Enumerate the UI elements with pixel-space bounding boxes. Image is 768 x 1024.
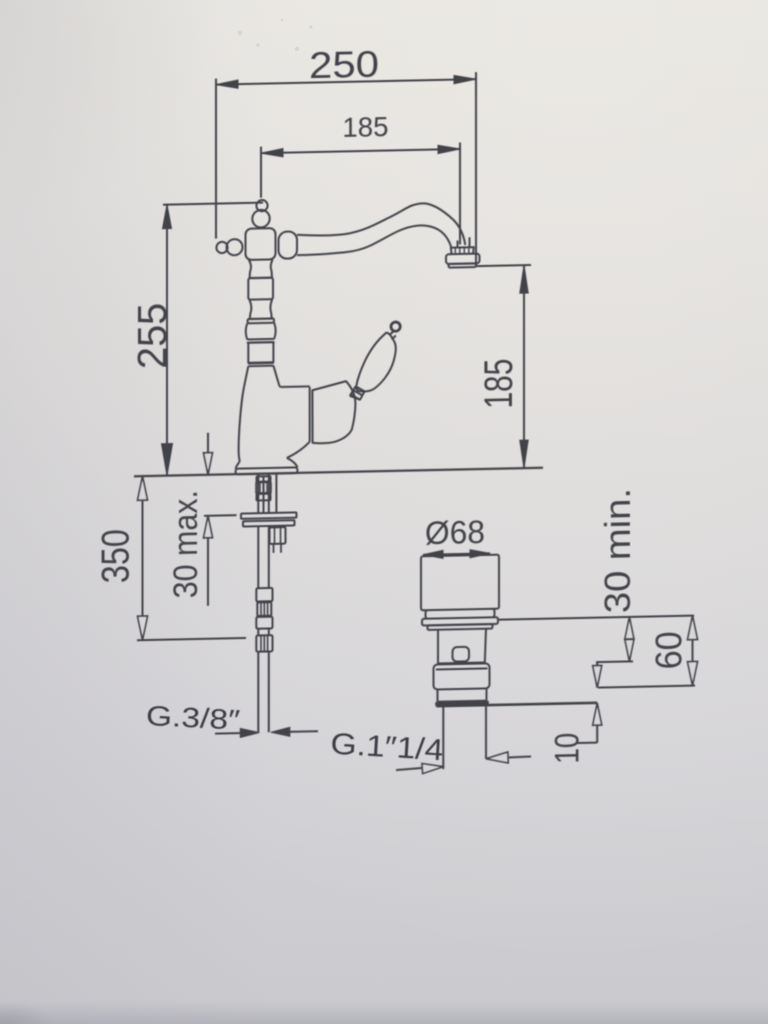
svg-text:350: 350	[95, 529, 138, 584]
svg-text:60: 60	[649, 631, 690, 670]
svg-text:10: 10	[548, 732, 586, 764]
svg-text:30 min.: 30 min.	[597, 488, 638, 614]
svg-text:185: 185	[342, 111, 388, 143]
svg-text:30 max.: 30 max.	[167, 490, 205, 599]
svg-text:Ø68: Ø68	[425, 514, 485, 551]
svg-text:185: 185	[477, 358, 521, 409]
svg-text:G.1″1/4: G.1″1/4	[330, 728, 445, 768]
svg-text:255: 255	[129, 302, 175, 369]
svg-text:G.3/8″: G.3/8″	[145, 700, 240, 736]
svg-text:250: 250	[309, 44, 379, 86]
